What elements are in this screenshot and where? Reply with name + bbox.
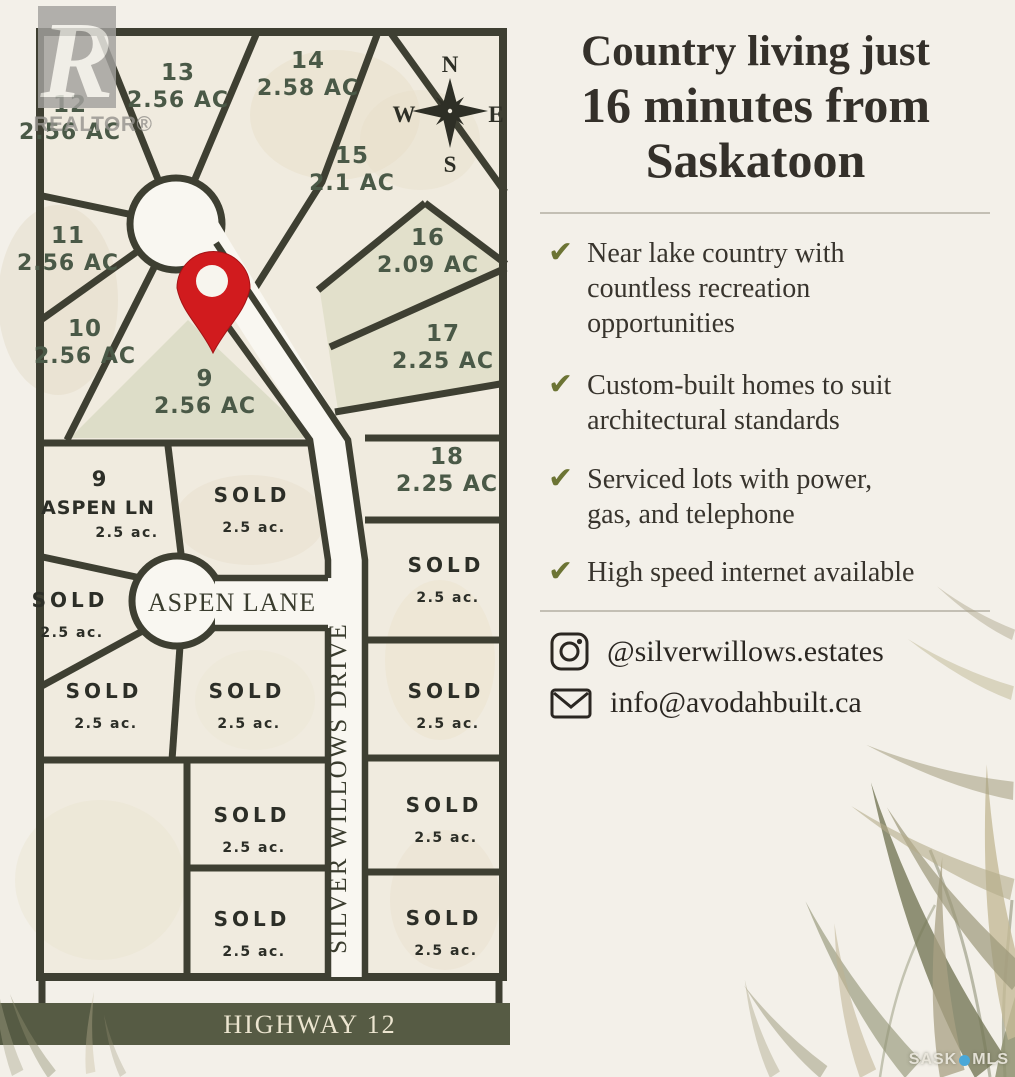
sold-label: SOLD <box>209 679 286 703</box>
check-icon: ✔ <box>548 555 573 589</box>
lot-acreage: 2.09 AC <box>377 253 479 278</box>
benefit-text: High speed internet available <box>587 555 914 590</box>
check-icon: ✔ <box>548 236 573 270</box>
sold-acreage: 2.5 ac. <box>222 520 285 536</box>
email-row: info@avodahbuilt.ca <box>550 686 862 720</box>
sold-acreage: 2.5 ac. <box>416 716 479 732</box>
sold-acreage: 2.5 ac. <box>414 943 477 959</box>
mls-watermark: SASK MLS <box>909 1051 1009 1069</box>
benefit-item: ✔High speed internet available <box>548 555 1001 590</box>
lot-acreage: 2.1 AC <box>309 171 395 196</box>
lot-acreage: 2.25 AC <box>392 349 494 374</box>
headline: Country living just16 minutes fromSaskat… <box>510 26 1001 188</box>
headline-line: Country living just <box>510 26 1001 78</box>
headline-line: 16 minutes from <box>510 78 1001 133</box>
lot-number: 15 <box>335 143 369 169</box>
instagram-handle: @silverwillows.estates <box>607 635 884 669</box>
aspen-lot-number: 9 <box>92 467 109 491</box>
sold-label: SOLD <box>406 793 483 817</box>
lot-number: 10 <box>68 316 102 342</box>
flyer: ASPEN LANE SILVER WILLOWS DRIVE HIGHWAY … <box>0 0 1015 1077</box>
lot-acreage: 2.56 AC <box>34 344 136 369</box>
check-icon: ✔ <box>548 368 573 402</box>
sold-label: SOLD <box>408 679 485 703</box>
lot-number: 9 <box>196 366 213 392</box>
lot-number: 11 <box>51 223 85 249</box>
lot-acreage: 2.58 AC <box>257 76 359 101</box>
sold-acreage: 2.5 ac. <box>416 590 479 606</box>
sold-acreage: 2.5 ac. <box>40 625 103 641</box>
lot-acreage: 2.56 AC <box>17 251 119 276</box>
instagram-icon <box>550 632 589 671</box>
mls-logo-dot <box>959 1055 970 1066</box>
sold-acreage: 2.5 ac. <box>74 716 137 732</box>
divider-top <box>540 212 990 214</box>
benefit-text: Custom-built homes to suitarchitectural … <box>587 368 891 438</box>
sold-label: SOLD <box>32 588 109 612</box>
benefit-text: Near lake country withcountless recreati… <box>587 236 844 341</box>
lot-number: 17 <box>426 321 460 347</box>
compass-n: N <box>442 52 459 77</box>
benefit-text: Serviced lots with power,gas, and teleph… <box>587 462 872 532</box>
lot-number: 13 <box>161 60 195 86</box>
sold-label: SOLD <box>66 679 143 703</box>
sold-label: SOLD <box>408 553 485 577</box>
aspen-lot-acreage: 2.5 ac. <box>95 525 158 541</box>
sold-acreage: 2.5 ac. <box>217 716 280 732</box>
lot-number: 12 <box>53 92 87 118</box>
info-panel: Country living just16 minutes fromSaskat… <box>510 0 1015 1077</box>
lot-acreage: 2.56 AC <box>127 88 229 113</box>
sold-label: SOLD <box>214 483 291 507</box>
lot-acreage: 2.56 AC <box>19 120 121 145</box>
sold-label: SOLD <box>214 803 291 827</box>
sold-acreage: 2.5 ac. <box>414 830 477 846</box>
mls-text-right: MLS <box>972 1051 1009 1069</box>
compass-w: W <box>393 102 416 127</box>
silver-willows-drive-label: SILVER WILLOWS DRIVE <box>325 622 352 954</box>
highway-label: HIGHWAY 12 <box>223 1010 396 1039</box>
sold-label: SOLD <box>406 906 483 930</box>
sold-acreage: 2.5 ac. <box>222 840 285 856</box>
lot-number: 14 <box>291 48 325 74</box>
check-icon: ✔ <box>548 462 573 496</box>
divider-bottom <box>540 610 990 612</box>
compass-e: E <box>488 102 503 127</box>
instagram-row: @silverwillows.estates <box>550 632 884 671</box>
email-icon <box>550 688 592 719</box>
lot-number: 16 <box>411 225 445 251</box>
aspen-lot-street: ASPEN LN <box>41 497 155 519</box>
benefit-item: ✔Near lake country withcountless recreat… <box>548 236 1001 341</box>
aspen-lane-label: ASPEN LANE <box>148 588 316 617</box>
headline-line: Saskatoon <box>510 133 1001 188</box>
lot-map: ASPEN LANE SILVER WILLOWS DRIVE HIGHWAY … <box>0 0 510 1077</box>
lot-number: 18 <box>430 444 464 470</box>
email-address: info@avodahbuilt.ca <box>610 686 862 720</box>
benefit-item: ✔Serviced lots with power,gas, and telep… <box>548 462 1001 532</box>
lot-acreage: 2.25 AC <box>396 472 498 497</box>
mls-text-left: SASK <box>909 1051 957 1069</box>
sold-label: SOLD <box>214 907 291 931</box>
sold-acreage: 2.5 ac. <box>222 944 285 960</box>
benefit-item: ✔Custom-built homes to suitarchitectural… <box>548 368 1001 438</box>
compass-s: S <box>444 152 457 177</box>
lot-acreage: 2.56 AC <box>154 394 256 419</box>
